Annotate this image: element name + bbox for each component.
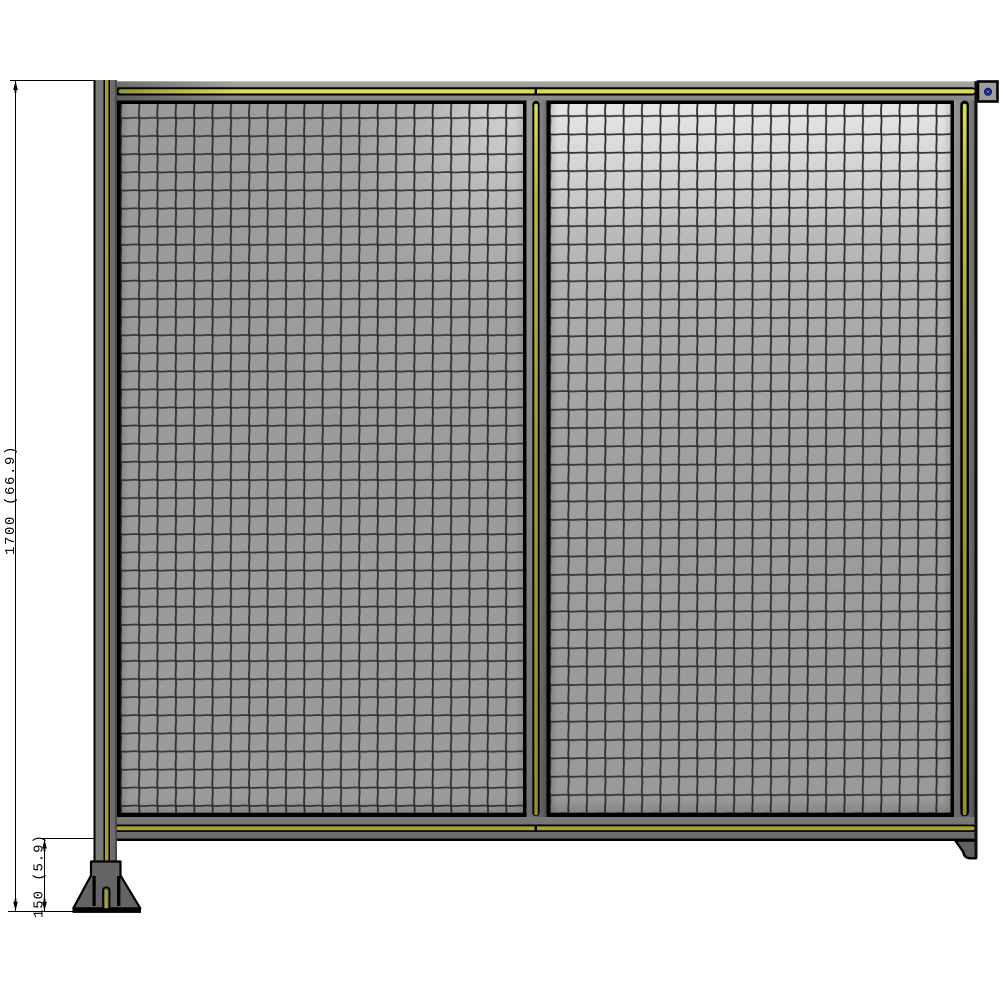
- svg-text:150 (5.9): 150 (5.9): [32, 834, 48, 918]
- svg-text:1700 (66.9): 1700 (66.9): [3, 445, 19, 555]
